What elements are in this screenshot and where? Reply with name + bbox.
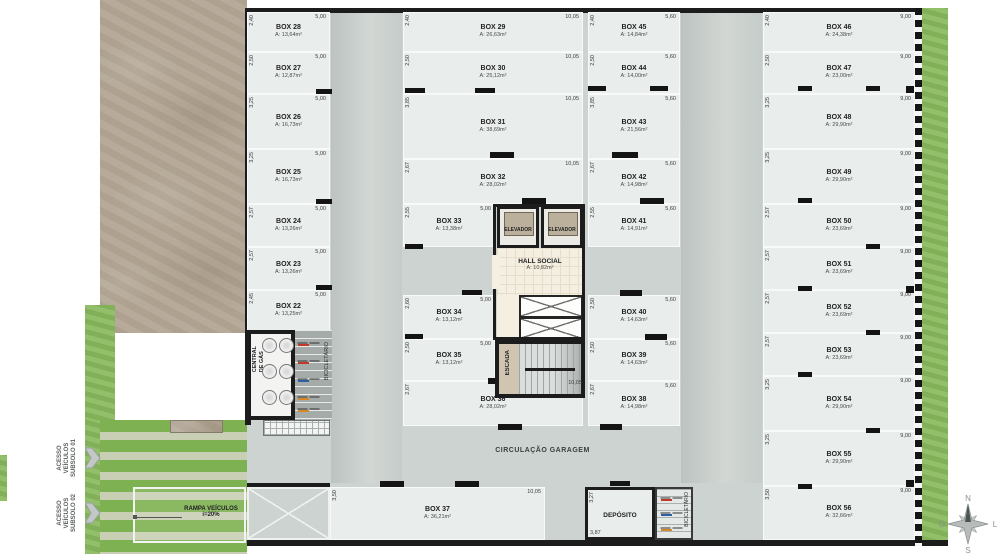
box-width-dim: 5,00 [315, 292, 326, 298]
box-room-box-40: 5,60 2,50 BOX 40 A: 14,63m² [588, 295, 680, 339]
box-label: BOX 22 A: 13,25m² [248, 302, 329, 317]
box-height-dim: 2,67 [405, 384, 411, 395]
box-room-box-53: 9,00 2,57 BOX 53 A: 23,69m² [763, 333, 915, 376]
access-arrow-2-icon [85, 499, 101, 527]
box-area: A: 13,25m² [248, 310, 329, 317]
box-width-dim: 9,00 [900, 206, 911, 212]
box-area: A: 32,66m² [764, 513, 914, 520]
box-height-dim: 2,55 [590, 207, 596, 218]
box-width-dim: 5,60 [665, 341, 676, 347]
box-name: BOX 35 [404, 352, 494, 360]
box-label: BOX 24 A: 13,26m² [248, 217, 329, 232]
ramp-leader-dot [133, 515, 137, 519]
door-marker [620, 290, 642, 296]
box-label: BOX 42 A: 14,98m² [589, 173, 679, 188]
box-name: BOX 45 [589, 24, 679, 32]
door-marker [906, 86, 914, 93]
box-width-dim: 9,00 [900, 378, 911, 384]
box-name: BOX 51 [764, 260, 914, 268]
box-label: BOX 25 A: 16,73m² [248, 168, 329, 183]
bike-icon [298, 362, 309, 364]
box-height-dim: 3,85 [405, 97, 411, 108]
door-marker [798, 484, 812, 489]
box-area: A: 29,90m² [764, 403, 914, 410]
box-room-box-56: 9,00 3,50 BOX 56 A: 32,66m² [763, 486, 915, 540]
box-room-box-50: 9,00 2,57 BOX 50 A: 23,69m² [763, 204, 915, 247]
gas-cylinder-icon [262, 390, 277, 405]
box-area: A: 23,69m² [764, 225, 914, 232]
drive-aisle-right [681, 13, 762, 483]
box-label: BOX 48 A: 29,90m² [764, 113, 914, 128]
box-name: BOX 26 [248, 113, 329, 121]
door-marker [455, 481, 479, 487]
door-marker [645, 334, 667, 340]
box-area: A: 14,91m² [589, 225, 679, 232]
gas-label-line1: CENTRAL [252, 346, 258, 372]
box-name: BOX 46 [764, 24, 914, 32]
door-marker [475, 88, 495, 93]
bike-icon [661, 499, 672, 501]
door-marker [380, 481, 404, 487]
box-height-dim: 3,50 [765, 489, 771, 500]
gas-room: CENTRAL DE GÁS [247, 330, 295, 420]
box-width-dim: 5,60 [665, 383, 676, 389]
box-room-box-35: 5,00 2,50 BOX 35 A: 13,12m² [403, 339, 495, 381]
deposit-dim-top: 3,27 [589, 492, 595, 503]
box-height-dim: 2,57 [765, 250, 771, 261]
stairs-landing: ESCADA [499, 344, 519, 394]
box-name: BOX 52 [764, 303, 914, 311]
box-name: BOX 37 [331, 505, 544, 513]
box-width-dim: 10,05 [527, 489, 541, 495]
box-area: A: 16,73m² [248, 121, 329, 128]
box-name: BOX 56 [764, 505, 914, 513]
box-area: A: 29,90m² [764, 121, 914, 128]
box-name: BOX 28 [248, 24, 329, 32]
box-area: A: 13,12m² [404, 317, 494, 324]
box-room-box-47: 9,00 2,50 BOX 47 A: 23,00m² [763, 52, 915, 94]
door-marker [798, 198, 812, 203]
box-area: A: 23,69m² [764, 268, 914, 275]
ramp-label-line2: i=20% [168, 512, 254, 518]
door-marker [866, 330, 880, 335]
box-room-box-25: 5,00 3,25 BOX 25 A: 16,73m² [247, 149, 330, 204]
access2-line1: ACESSO [57, 489, 64, 537]
box-room-box-49: 9,00 3,25 BOX 49 A: 29,90m² [763, 149, 915, 204]
box-room-box-54: 9,00 3,25 BOX 54 A: 29,90m² [763, 376, 915, 431]
box-name: BOX 53 [764, 346, 914, 354]
box-label: BOX 55 A: 29,90m² [764, 450, 914, 465]
box-label: BOX 35 A: 13,12m² [404, 352, 494, 367]
box-area: A: 24,38m² [764, 32, 914, 39]
box-width-dim: 5,00 [315, 151, 326, 157]
gas-cylinder-icon [262, 338, 277, 353]
box-label: BOX 53 A: 23,69m² [764, 346, 914, 361]
bike-icon [661, 529, 672, 531]
wall-right-dashed [915, 8, 922, 546]
box-name: BOX 40 [589, 309, 679, 317]
box-room-box-48: 9,00 3,25 BOX 48 A: 29,90m² [763, 94, 915, 149]
access1-line3: SUBSOLO 01 [71, 434, 78, 482]
box-area: A: 14,98m² [589, 181, 679, 188]
compass-e: L [993, 520, 998, 529]
box-room-box-55: 9,00 3,25 BOX 55 A: 29,90m² [763, 431, 915, 486]
box-label: BOX 29 A: 26,63m² [404, 24, 582, 39]
box-width-dim: 5,00 [480, 341, 491, 347]
garage-floor-plan: RAMPA VEÍCULOS i=20% 5,00 2,40 BOX 28 A:… [0, 0, 1000, 554]
door-marker [612, 152, 638, 158]
box-area: A: 26,63m² [404, 32, 582, 39]
box-room-box-23: 5,00 2,57 BOX 23 A: 13,26m² [247, 247, 330, 290]
box-room-box-51: 9,00 2,57 BOX 51 A: 23,69m² [763, 247, 915, 290]
box-width-dim: 5,60 [665, 206, 676, 212]
door-marker [462, 290, 482, 295]
gas-cylinder-icon [279, 390, 294, 405]
canopy-hatch [263, 420, 330, 436]
box-width-dim: 5,00 [315, 206, 326, 212]
box-name: BOX 31 [404, 118, 582, 126]
box-area: A: 12,87m² [248, 73, 329, 80]
box-width-dim: 5,60 [665, 297, 676, 303]
box-room-box-43: 5,60 3,85 BOX 43 A: 21,56m² [588, 94, 680, 159]
box-area: A: 25,12m² [404, 73, 582, 80]
box-room-box-27: 5,00 2,50 BOX 27 A: 12,87m² [247, 52, 330, 94]
box-area: A: 29,90m² [764, 176, 914, 183]
box-room-box-32: 10,05 2,67 BOX 32 A: 28,02m² [403, 159, 583, 204]
box-width-dim: 10,05 [565, 161, 579, 167]
box-width-dim: 10,05 [565, 14, 579, 20]
box-name: BOX 41 [589, 217, 679, 225]
ramp-entry-crossed [247, 487, 330, 540]
bike-icon [298, 380, 309, 382]
ramp-label: RAMPA VEÍCULOS i=20% [168, 506, 254, 518]
box-label: BOX 37 A: 36,21m² [331, 505, 544, 520]
grass-edge-sliver [0, 455, 7, 501]
box-name: BOX 49 [764, 168, 914, 176]
box-height-dim: 2,57 [765, 293, 771, 304]
box-area: A: 28,02m² [404, 181, 582, 188]
box-height-dim: 3,50 [332, 490, 338, 501]
box-width-dim: 9,00 [900, 433, 911, 439]
box-label: BOX 27 A: 12,87m² [248, 65, 329, 80]
box-height-dim: 3,25 [249, 152, 255, 163]
door-marker [650, 86, 668, 91]
bike-icon [298, 344, 309, 346]
box-height-dim: 2,55 [405, 207, 411, 218]
box-height-dim: 2,60 [405, 298, 411, 309]
box-label: BOX 26 A: 16,73m² [248, 113, 329, 128]
door-marker [866, 244, 880, 249]
box-area: A: 14,00m² [589, 73, 679, 80]
box-name: BOX 47 [764, 65, 914, 73]
box-width-dim: 5,60 [665, 54, 676, 60]
box-width-dim: 5,00 [480, 206, 491, 212]
box-area: A: 23,69m² [764, 311, 914, 318]
box-height-dim: 2,67 [590, 162, 596, 173]
box-area: A: 28,02m² [404, 403, 582, 410]
door-marker [498, 424, 522, 430]
bike-area-left: BICICLETÁRIO [295, 330, 332, 420]
box-height-dim: 2,50 [590, 298, 596, 309]
box-room-box-24: 5,00 2,57 BOX 24 A: 13,26m² [247, 204, 330, 247]
box-height-dim: 2,67 [590, 384, 596, 395]
box-width-dim: 9,00 [900, 54, 911, 60]
box-area: A: 13,38m² [404, 225, 494, 232]
box-room-box-33: 5,00 2,55 BOX 33 A: 13,38m² [403, 204, 495, 247]
access1-line1: ACESSO [57, 434, 64, 482]
bike-icon [661, 514, 672, 516]
box-label: BOX 41 A: 14,91m² [589, 217, 679, 232]
access2-line2: VEÍCULOS [64, 489, 71, 537]
box-name: BOX 54 [764, 395, 914, 403]
hall-entry-gap [492, 255, 500, 289]
box-area: A: 23,00m² [764, 73, 914, 80]
box-name: BOX 34 [404, 309, 494, 317]
box-area: A: 29,90m² [764, 458, 914, 465]
ramp-entry-top-wall [247, 483, 330, 487]
box-room-box-22: 5,00 2,45 BOX 22 A: 13,25m² [247, 290, 330, 331]
box-height-dim: 3,25 [249, 97, 255, 108]
deposit-dim-bottom: 3,87 [590, 530, 601, 536]
box-label: BOX 56 A: 32,66m² [764, 505, 914, 520]
box-room-box-45: 5,60 2,40 BOX 45 A: 14,84m² [588, 12, 680, 52]
box-label: BOX 40 A: 14,63m² [589, 309, 679, 324]
box-room-box-52: 9,00 2,57 BOX 52 A: 23,69m² [763, 290, 915, 333]
box-label: BOX 54 A: 29,90m² [764, 395, 914, 410]
box-room-box-46: 9,00 2,40 BOX 46 A: 24,38m² [763, 12, 915, 52]
access-subsolo-02: ACESSO VEÍCULOS SUBSOLO 02 [57, 489, 85, 537]
box-name: BOX 55 [764, 450, 914, 458]
box-area: A: 21,56m² [589, 126, 679, 133]
bike-icon [298, 398, 309, 400]
box-label: BOX 44 A: 14,00m² [589, 65, 679, 80]
box-label: BOX 38 A: 14,98m² [589, 395, 679, 410]
box-area: A: 16,73m² [248, 176, 329, 183]
box-label: BOX 33 A: 13,38m² [404, 217, 494, 232]
box-width-dim: 5,60 [665, 96, 676, 102]
door-marker [866, 428, 880, 433]
box-height-dim: 3,25 [765, 379, 771, 390]
deposit-room: DEPÓSITO 3,27 3,87 [585, 487, 655, 540]
box-name: BOX 42 [589, 173, 679, 181]
box-label: BOX 30 A: 25,12m² [404, 65, 582, 80]
core-wall-outline [493, 204, 585, 340]
box-height-dim: 3,25 [765, 434, 771, 445]
box-height-dim: 2,57 [249, 250, 255, 261]
box-name: BOX 39 [589, 352, 679, 360]
compass-n: N [965, 494, 971, 503]
box-room-box-29: 10,05 2,40 BOX 29 A: 26,63m² [403, 12, 583, 52]
door-marker [316, 285, 332, 290]
box-width-dim: 5,00 [315, 249, 326, 255]
box-area: A: 13,26m² [248, 268, 329, 275]
box-label: BOX 45 A: 14,84m² [589, 24, 679, 39]
door-marker [798, 286, 812, 291]
door-marker [610, 481, 630, 486]
box-label: BOX 23 A: 13,26m² [248, 260, 329, 275]
door-marker [316, 199, 332, 204]
box-area: A: 14,63m² [589, 360, 679, 367]
box-height-dim: 2,57 [765, 336, 771, 347]
box-area: A: 14,98m² [589, 403, 679, 410]
box-width-dim: 5,00 [315, 54, 326, 60]
box-name: BOX 30 [404, 65, 582, 73]
box-label: BOX 31 A: 38,69m² [404, 118, 582, 133]
box-room-box-28: 5,00 2,40 BOX 28 A: 13,64m² [247, 12, 330, 52]
box-name: BOX 24 [248, 217, 329, 225]
door-marker [906, 480, 914, 487]
core-bottom-dim: 10,05 [552, 380, 582, 386]
door-marker [640, 198, 664, 204]
door-marker [866, 86, 880, 91]
gas-cylinder-icon [279, 364, 294, 379]
box-height-dim: 3,25 [765, 152, 771, 163]
box-label: BOX 52 A: 23,69m² [764, 303, 914, 318]
box-name: BOX 32 [404, 173, 582, 181]
box-room-box-26: 5,00 3,25 BOX 26 A: 16,73m² [247, 94, 330, 149]
box-area: A: 13,64m² [248, 32, 329, 39]
box-label: BOX 46 A: 24,38m² [764, 24, 914, 39]
box-height-dim: 2,57 [765, 207, 771, 218]
grass-right-strip [922, 8, 948, 546]
door-marker [316, 89, 332, 94]
box-name: BOX 27 [248, 65, 329, 73]
box-width-dim: 5,60 [665, 161, 676, 167]
compass-s: S [965, 546, 970, 554]
box-height-dim: 3,85 [590, 97, 596, 108]
box-label: BOX 39 A: 14,63m² [589, 352, 679, 367]
access2-line3: SUBSOLO 02 [71, 489, 78, 537]
gas-cylinder-icon [279, 338, 294, 353]
box-label: BOX 28 A: 13,64m² [248, 24, 329, 39]
door-marker [798, 86, 812, 91]
box-height-dim: 2,57 [249, 207, 255, 218]
box-width-dim: 9,00 [900, 488, 911, 494]
terrain-area [100, 0, 247, 333]
box-name: BOX 22 [248, 302, 329, 310]
box-name: BOX 29 [404, 24, 582, 32]
door-marker [798, 372, 812, 377]
box-width-dim: 9,00 [900, 14, 911, 20]
box-label: BOX 32 A: 28,02m² [404, 173, 582, 188]
box-room-box-31: 10,05 3,85 BOX 31 A: 38,69m² [403, 94, 583, 159]
compass-icon: N S O L [936, 490, 1000, 554]
box-area: A: 23,69m² [764, 354, 914, 361]
grass-left-lower [85, 420, 101, 554]
door-marker [906, 286, 914, 293]
box-label: BOX 47 A: 23,00m² [764, 65, 914, 80]
access-arrow-1-icon [85, 444, 101, 472]
stairs-rail [525, 368, 575, 371]
wall-bottom [247, 540, 948, 546]
box-area: A: 13,12m² [404, 360, 494, 367]
box-width-dim: 5,00 [315, 14, 326, 20]
box-label: BOX 43 A: 21,56m² [589, 118, 679, 133]
grass-left-strip [85, 305, 115, 422]
circulation-label: CIRCULAÇÃO GARAGEM [455, 447, 630, 454]
drive-aisle-left [331, 13, 402, 483]
terrain-patch [170, 420, 223, 433]
box-name: BOX 48 [764, 113, 914, 121]
box-width-dim: 9,00 [900, 335, 911, 341]
box-name: BOX 23 [248, 260, 329, 268]
box-width-dim: 9,00 [900, 96, 911, 102]
deposit-label: DEPÓSITO [588, 512, 652, 519]
compass-w: O [939, 520, 945, 529]
box-label: BOX 49 A: 29,90m² [764, 168, 914, 183]
box-area: A: 13,26m² [248, 225, 329, 232]
box-room-box-42: 5,60 2,67 BOX 42 A: 14,98m² [588, 159, 680, 204]
access-subsolo-01: ACESSO VEÍCULOS SUBSOLO 01 [57, 434, 85, 482]
gas-cylinder-icon [262, 364, 277, 379]
box-area: A: 36,21m² [331, 513, 544, 520]
box-width-dim: 5,00 [315, 96, 326, 102]
box-width-dim: 10,05 [565, 54, 579, 60]
box-area: A: 14,84m² [589, 32, 679, 39]
box-area: A: 14,63m² [589, 317, 679, 324]
stairs-label: ESCADA [505, 350, 511, 375]
box-name: BOX 38 [589, 395, 679, 403]
bike-icon [298, 410, 309, 412]
bike-area-right: BICICLETÁRIO [655, 487, 693, 540]
box-name: BOX 44 [589, 65, 679, 73]
box-width-dim: 10,05 [565, 96, 579, 102]
box-room-box-39: 5,60 2,50 BOX 39 A: 14,63m² [588, 339, 680, 381]
door-marker [405, 88, 425, 93]
box-name: BOX 50 [764, 217, 914, 225]
box-room-box-37: 10,05 3,50 BOX 37 A: 36,21m² [330, 487, 545, 540]
box-name: BOX 33 [404, 217, 494, 225]
box-name: BOX 43 [589, 118, 679, 126]
bike-left-label: BICICLETÁRIO [324, 342, 330, 380]
bike-right-label: BICICLETÁRIO [684, 492, 690, 527]
box-label: BOX 51 A: 23,69m² [764, 260, 914, 275]
access1-line2: VEÍCULOS [64, 434, 71, 482]
box-height-dim: 2,67 [405, 162, 411, 173]
box-width-dim: 5,00 [480, 297, 491, 303]
box-room-box-41: 5,60 2,55 BOX 41 A: 14,91m² [588, 204, 680, 247]
box-room-box-38: 5,60 2,67 BOX 38 A: 14,98m² [588, 381, 680, 426]
door-marker [588, 86, 606, 91]
box-width-dim: 9,00 [900, 151, 911, 157]
door-marker [600, 424, 622, 430]
box-height-dim: 3,25 [765, 97, 771, 108]
door-marker [490, 152, 514, 158]
door-marker [405, 334, 423, 339]
stairwell: ESCADA [495, 340, 585, 398]
box-room-box-34: 5,00 2,60 BOX 34 A: 13,12m² [403, 295, 495, 339]
box-width-dim: 5,60 [665, 14, 676, 20]
box-area: A: 38,69m² [404, 126, 582, 133]
door-marker [405, 244, 423, 249]
box-width-dim: 9,00 [900, 249, 911, 255]
box-label: BOX 34 A: 13,12m² [404, 309, 494, 324]
box-name: BOX 25 [248, 168, 329, 176]
box-label: BOX 50 A: 23,69m² [764, 217, 914, 232]
